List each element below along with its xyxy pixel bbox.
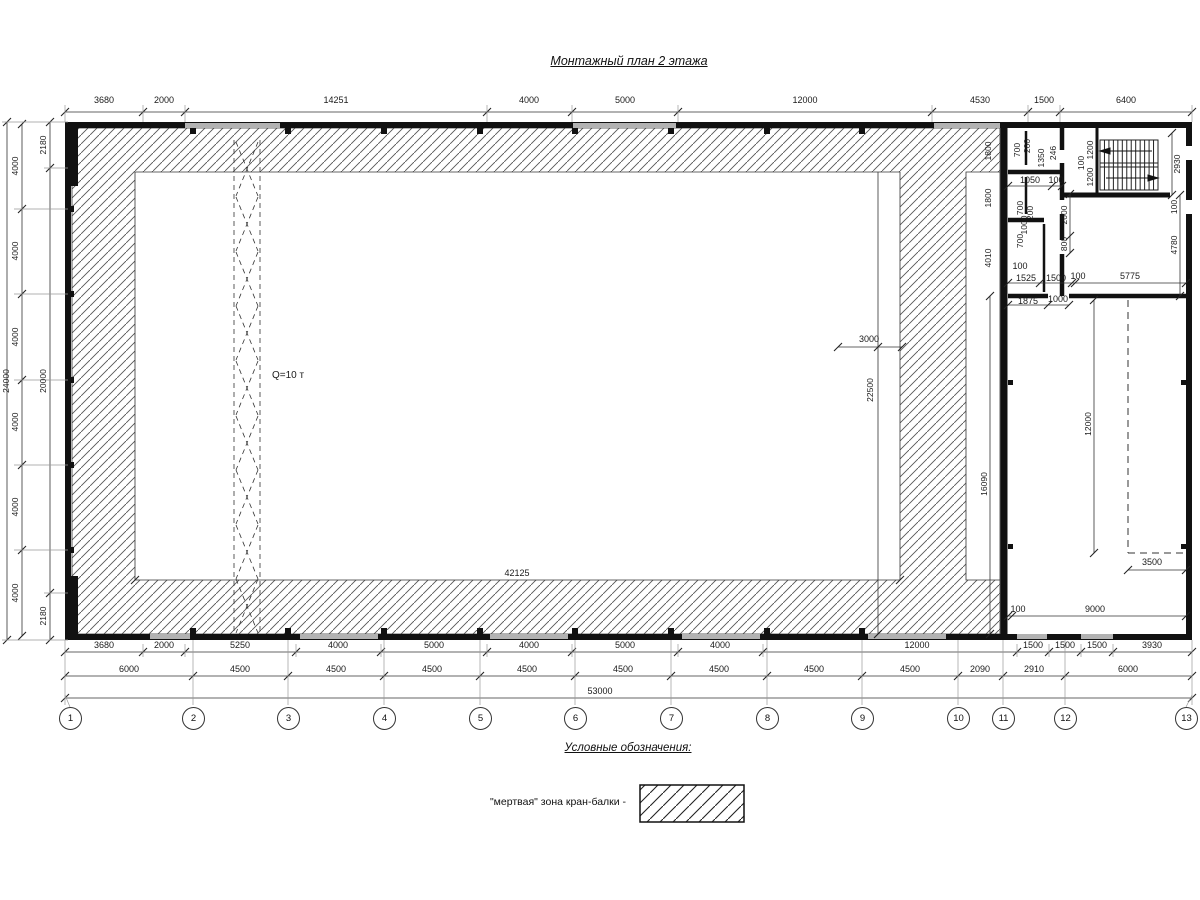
dim-label: 700 — [1016, 234, 1025, 248]
staircase — [1100, 140, 1158, 190]
grid-leader-slants — [65, 695, 1192, 707]
grid-bubble-3: 3 — [277, 707, 300, 730]
grid-bubble-10: 10 — [947, 707, 970, 730]
grid-bubble-8: 8 — [756, 707, 779, 730]
dim-label: 200 — [1023, 139, 1032, 153]
dim-label: 12000 — [792, 96, 817, 105]
dim-label: 1000 — [1048, 295, 1068, 304]
crane-dead-zone-hatch — [72, 128, 1000, 634]
grid-bubble-11: 11 — [992, 707, 1015, 730]
dim-label: 4000 — [328, 641, 348, 650]
dim-label: 1500 — [1046, 274, 1066, 283]
dim-label: 100 — [1048, 176, 1063, 185]
dim-label: 3680 — [94, 641, 114, 650]
dim-label: 4000 — [710, 641, 730, 650]
dim-label: 700 — [1013, 143, 1022, 157]
dim-label: 1000 — [1020, 216, 1029, 235]
dim-label: 4000 — [11, 413, 20, 432]
legend-heading: Условные обозначения: — [565, 742, 692, 756]
dim-label: 4000 — [519, 641, 539, 650]
dim-label: 4000 — [519, 96, 539, 105]
grid-bubble-13: 13 — [1175, 707, 1198, 730]
crane-capacity-label: Q=10 т — [272, 371, 304, 381]
dim-label: 700 — [1016, 201, 1025, 215]
dim-label: 2000 — [154, 641, 174, 650]
dim-left-total: 24000 — [2, 369, 11, 393]
dim-label: 4500 — [709, 665, 729, 674]
door-gap-right-wall-2 — [1185, 200, 1194, 214]
dim-label: 1875 — [1018, 297, 1038, 306]
dim-label: 4500 — [326, 665, 346, 674]
dim-label: 100 — [1077, 156, 1086, 170]
dim-label: 2180 — [39, 607, 48, 626]
floor-plan-svg — [0, 0, 1200, 900]
hall-deadzone-dim: 22500 — [866, 378, 875, 402]
dim-label: 1500 — [1087, 641, 1107, 650]
dim-label: 100 — [1170, 200, 1179, 214]
dim-label: 4530 — [970, 96, 990, 105]
dim-label: 1500 — [1023, 641, 1043, 650]
dim-label: 1500 — [1055, 641, 1075, 650]
dim-label: 4000 — [11, 157, 20, 176]
legend-hatch-swatch — [640, 785, 744, 822]
grid-bubble-2: 2 — [182, 707, 205, 730]
dim-label: 4010 — [984, 249, 993, 268]
dim-label: 3930 — [1142, 641, 1162, 650]
dim-label: 4500 — [517, 665, 537, 674]
dim-total-label: 53000 — [587, 687, 612, 696]
grid-bubble-6: 6 — [564, 707, 587, 730]
dim-label: 1525 — [1016, 274, 1036, 283]
hall-width-dim: 42125 — [504, 569, 529, 578]
dim-label: 2000 — [1060, 206, 1069, 225]
dim-label: 2930 — [1173, 155, 1182, 174]
window-openings — [150, 123, 1113, 639]
dim-label: 4780 — [1170, 236, 1179, 255]
dim-label: 2090 — [970, 665, 990, 674]
dim-label: 1800 — [984, 142, 993, 161]
dim-label: 4000 — [11, 584, 20, 603]
dim-label: 1800 — [984, 189, 993, 208]
dim-label: 6400 — [1116, 96, 1136, 105]
dim-label: 1350 — [1037, 149, 1046, 168]
dim-label: 16090 — [980, 472, 989, 496]
dim-label: 100 — [1012, 262, 1027, 271]
dim-label: 2180 — [39, 136, 48, 155]
dim-label: 12000 — [904, 641, 929, 650]
dim-label: 6000 — [1118, 665, 1138, 674]
dim-label: 5775 — [1120, 272, 1140, 281]
dim-label: 246 — [1049, 146, 1058, 160]
dim-label: 4000 — [11, 328, 20, 347]
dim-label: 100 — [1070, 272, 1085, 281]
legend-dead-zone-label: "мертвая" зона кран-балки - — [490, 796, 626, 809]
dim-label: 1200 — [1086, 141, 1095, 160]
corner-pier-top-left — [65, 122, 78, 186]
dim-label: 4500 — [613, 665, 633, 674]
dim-label: 4500 — [230, 665, 250, 674]
right-hall-crane-zone — [1128, 300, 1186, 553]
grid-bubble-1: 1 — [59, 707, 82, 730]
dim-label: 12000 — [1084, 412, 1093, 436]
dim-label: 6000 — [119, 665, 139, 674]
dim-label: 4500 — [900, 665, 920, 674]
dim-label: 14251 — [323, 96, 348, 105]
dim-label: 4500 — [804, 665, 824, 674]
corner-pier-bottom-left — [65, 576, 78, 640]
crane-runway — [234, 140, 260, 634]
dim-label: 2000 — [154, 96, 174, 105]
dim-label: 5000 — [615, 641, 635, 650]
hall-offset-dim: 3000 — [859, 335, 879, 344]
dim-label: 1050 — [1020, 176, 1040, 185]
dim-label: 4000 — [11, 498, 20, 517]
dim-label: 5000 — [615, 96, 635, 105]
dim-label: 100 — [1010, 605, 1025, 614]
dim-label: 1500 — [1034, 96, 1054, 105]
dim-label: 2910 — [1024, 665, 1044, 674]
drawing-sheet: Монтажный план 2 этажа Условные обозначе… — [0, 0, 1200, 900]
grid-bubble-5: 5 — [469, 707, 492, 730]
dim-label: 800 — [1060, 237, 1069, 251]
dim-label: 20000 — [39, 369, 48, 393]
grid-bubble-12: 12 — [1054, 707, 1077, 730]
door-gap-right-wall-1 — [1185, 146, 1194, 160]
dim-label: 9000 — [1085, 605, 1105, 614]
grid-bubble-7: 7 — [660, 707, 683, 730]
dim-label: 5000 — [424, 641, 444, 650]
dim-label: 3500 — [1142, 558, 1162, 567]
dim-label: 5250 — [230, 641, 250, 650]
dim-label: 1200 — [1086, 168, 1095, 187]
page-title: Монтажный план 2 этажа — [550, 54, 707, 69]
dim-label: 3680 — [94, 96, 114, 105]
dim-label: 4000 — [11, 242, 20, 261]
grid-bubble-9: 9 — [851, 707, 874, 730]
dim-label: 4500 — [422, 665, 442, 674]
grid-bubble-4: 4 — [373, 707, 396, 730]
